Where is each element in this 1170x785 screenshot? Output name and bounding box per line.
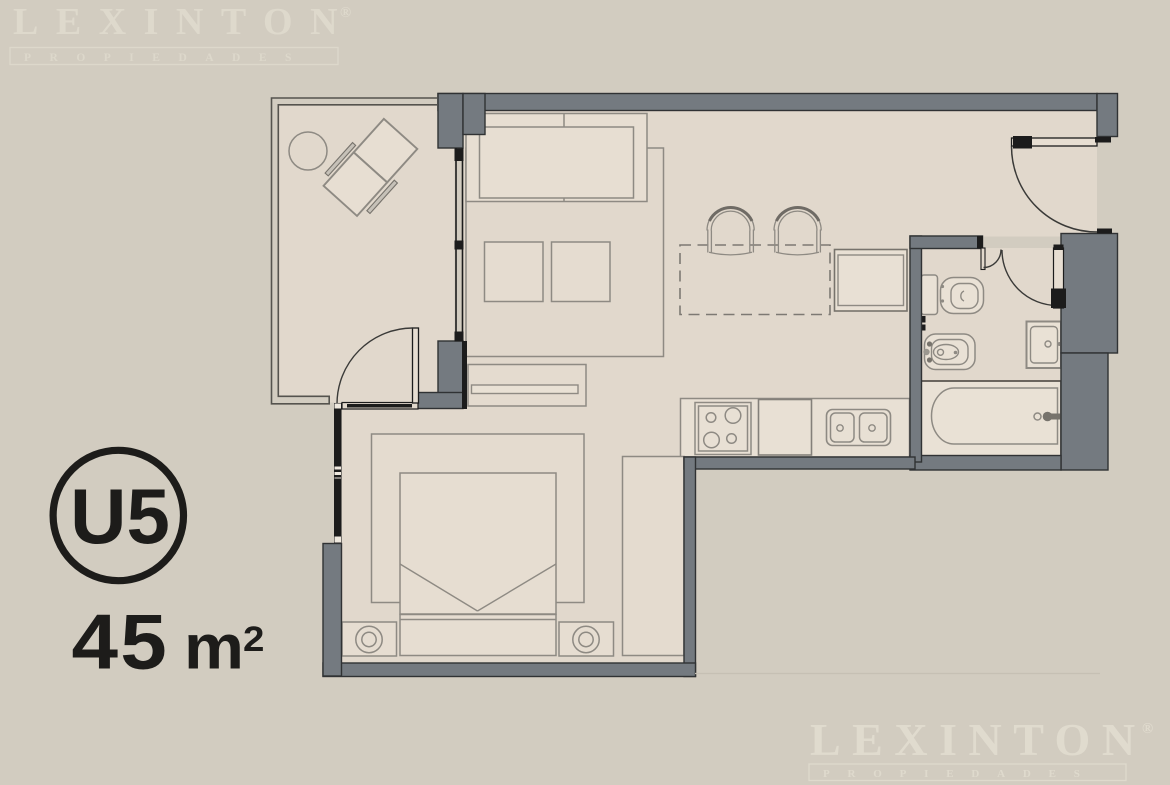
svg-text:LEXINTON: LEXINTON — [810, 714, 1147, 765]
svg-text:®: ® — [340, 5, 351, 21]
svg-text:PROPIEDADES: PROPIEDADES — [823, 768, 1098, 780]
svg-text:®: ® — [1142, 721, 1153, 737]
svg-text:PROPIEDADES: PROPIEDADES — [24, 52, 310, 64]
svg-text:45: 45 — [72, 599, 169, 685]
svg-text:2: 2 — [243, 620, 264, 659]
svg-text:m: m — [184, 612, 244, 682]
svg-text:LEXINTON: LEXINTON — [13, 1, 355, 43]
svg-text:U5: U5 — [70, 472, 170, 560]
